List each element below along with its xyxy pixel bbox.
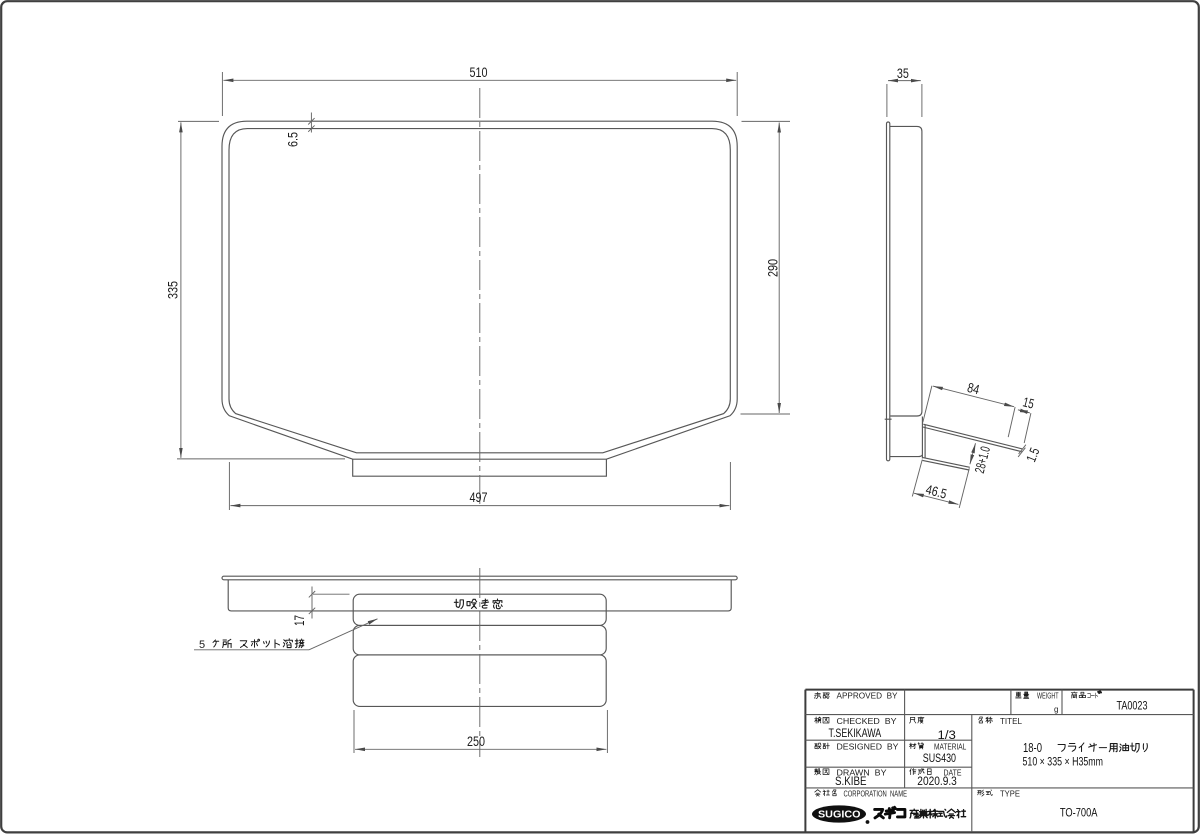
svg-text:84: 84 — [966, 380, 982, 398]
svg-text:290: 290 — [766, 259, 781, 277]
svg-text:T.SEKIKAWA: T.SEKIKAWA — [829, 728, 882, 740]
svg-text:APPROVED BY: APPROVED BY — [837, 692, 899, 701]
svg-text:15: 15 — [1021, 394, 1035, 411]
svg-text:35: 35 — [897, 66, 909, 81]
svg-text:510 × 335 × H35mm: 510 × 335 × H35mm — [1023, 756, 1104, 768]
svg-text:DESIGNED BY: DESIGNED BY — [837, 743, 900, 752]
svg-text:TO-700A: TO-700A — [1060, 807, 1098, 819]
svg-text:SUGICO: SUGICO — [818, 810, 861, 821]
svg-text:250: 250 — [467, 734, 485, 749]
svg-text:SUS430: SUS430 — [923, 751, 956, 765]
svg-text:28+1.0: 28+1.0 — [972, 445, 993, 475]
svg-text:497: 497 — [470, 490, 488, 505]
svg-text:g: g — [1054, 705, 1058, 714]
svg-text:CORPORATION NAME: CORPORATION NAME — [844, 790, 908, 799]
svg-text:18-0: 18-0 — [1023, 741, 1042, 755]
svg-text:1/3: 1/3 — [938, 730, 956, 742]
svg-text:17: 17 — [292, 615, 307, 626]
svg-text:S.KIBE: S.KIBE — [835, 776, 867, 788]
svg-text:510: 510 — [470, 65, 488, 80]
svg-text:335: 335 — [166, 281, 181, 299]
svg-text:TITEL: TITEL — [1000, 717, 1023, 726]
svg-text:6.5: 6.5 — [286, 132, 301, 147]
svg-text:5: 5 — [199, 639, 205, 651]
svg-text:1.5: 1.5 — [1023, 446, 1042, 465]
svg-text:46.5: 46.5 — [924, 482, 948, 502]
svg-text:TYPE: TYPE — [1000, 790, 1020, 799]
svg-text:TA0023: TA0023 — [1117, 701, 1148, 713]
svg-text:CHECKED BY: CHECKED BY — [837, 717, 898, 726]
svg-text:WEIGHT: WEIGHT — [1037, 692, 1059, 701]
svg-text:2020.9.3: 2020.9.3 — [917, 776, 957, 788]
